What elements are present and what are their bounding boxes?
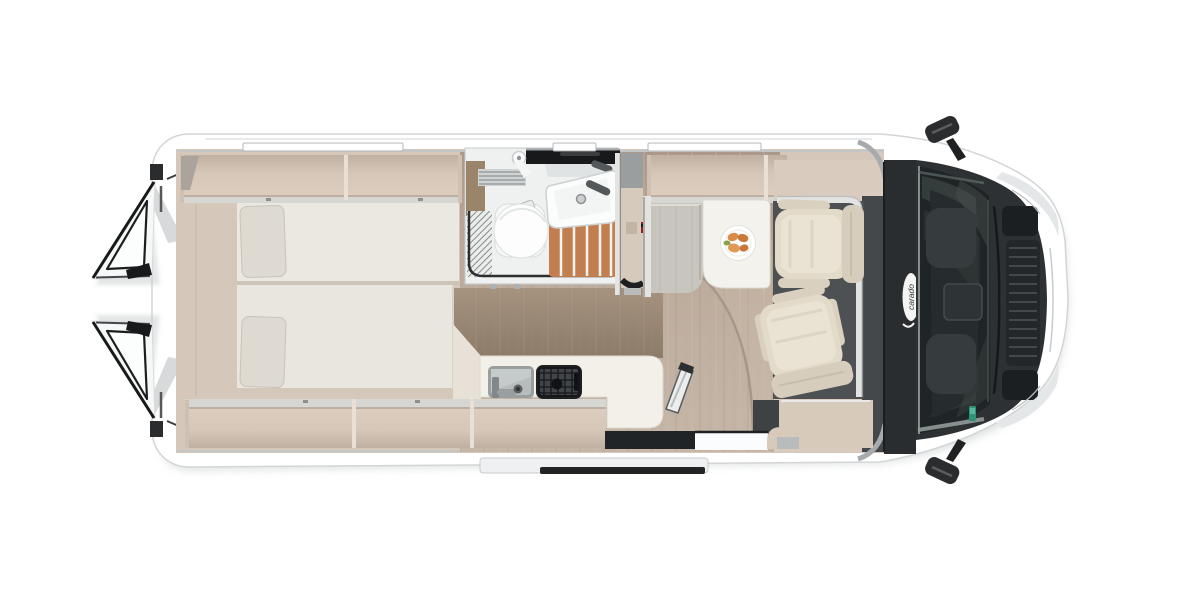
svg-text:carado: carado	[906, 284, 916, 310]
